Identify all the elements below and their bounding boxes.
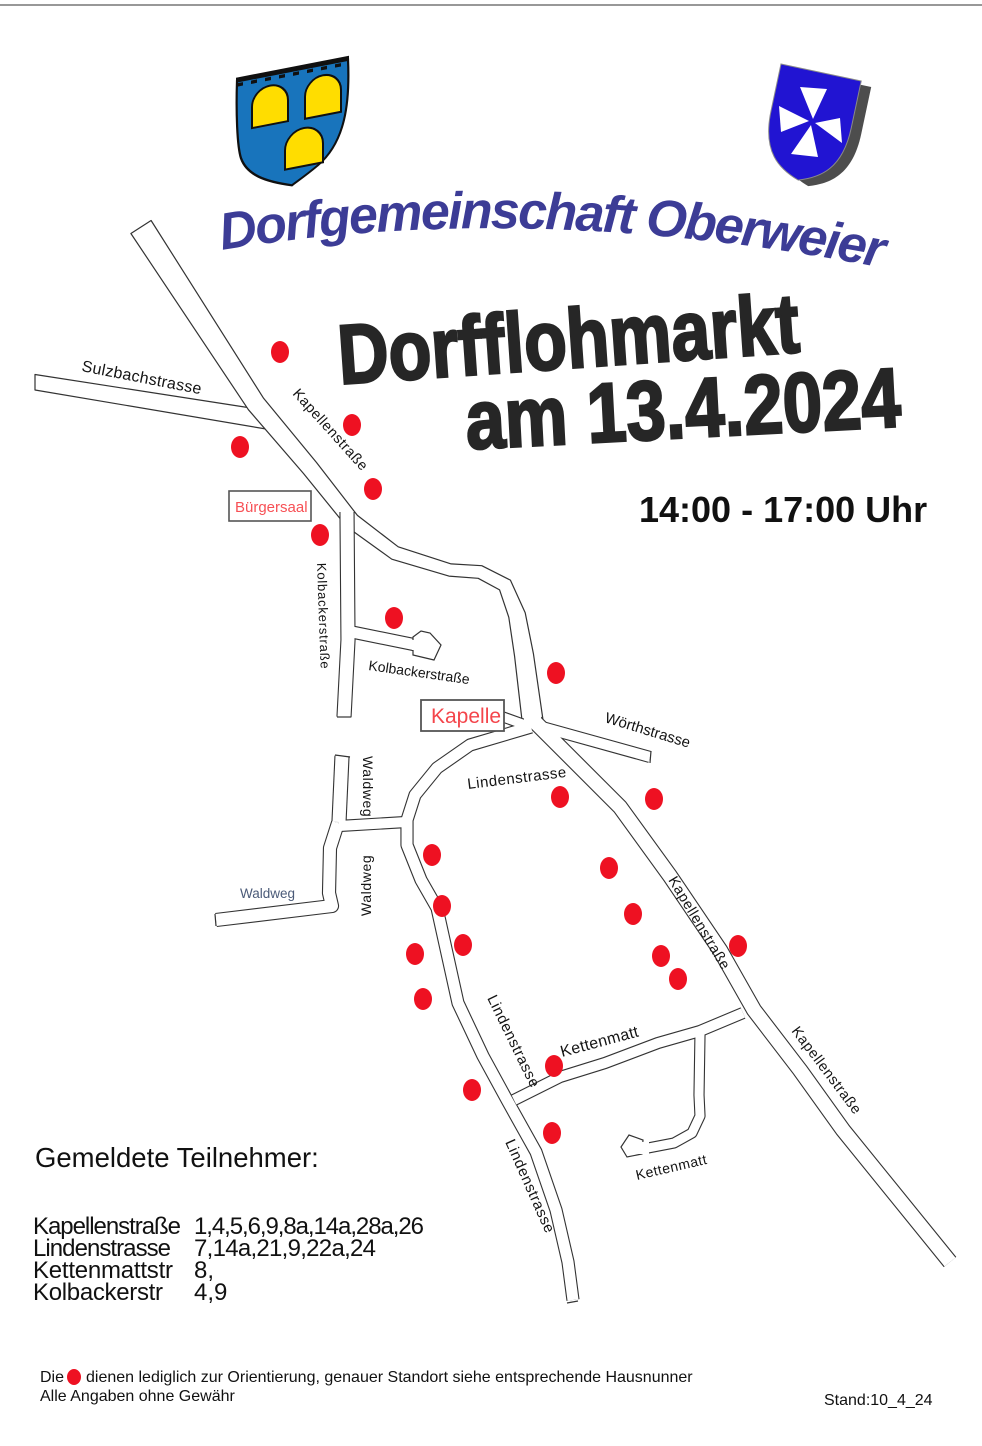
svg-text:4,9: 4,9 — [194, 1279, 227, 1306]
svg-text:Bürgersaal: Bürgersaal — [235, 499, 308, 516]
svg-text:Alle Angaben ohne Gewähr: Alle Angaben ohne Gewähr — [40, 1388, 235, 1405]
svg-text:Stand:10_4_24: Stand:10_4_24 — [824, 1392, 933, 1409]
svg-text:14:00 - 17:00 Uhr: 14:00 - 17:00 Uhr — [639, 489, 927, 530]
svg-text:Waldweg: Waldweg — [358, 855, 374, 916]
svg-text:7,14a,21,9,22a,24: 7,14a,21,9,22a,24 — [194, 1235, 376, 1262]
svg-text:Kolbackerstr: Kolbackerstr — [33, 1279, 163, 1306]
svg-text:Gemeldete Teilnehmer:: Gemeldete Teilnehmer: — [35, 1142, 319, 1173]
svg-text:Waldweg: Waldweg — [240, 886, 295, 901]
svg-text:Die: Die — [40, 1369, 64, 1386]
svg-text:Kapelle: Kapelle — [431, 705, 501, 728]
svg-text:Waldweg: Waldweg — [360, 756, 376, 817]
svg-text:dienen lediglich zur Orientier: dienen lediglich zur Orientierung, genau… — [86, 1369, 693, 1386]
